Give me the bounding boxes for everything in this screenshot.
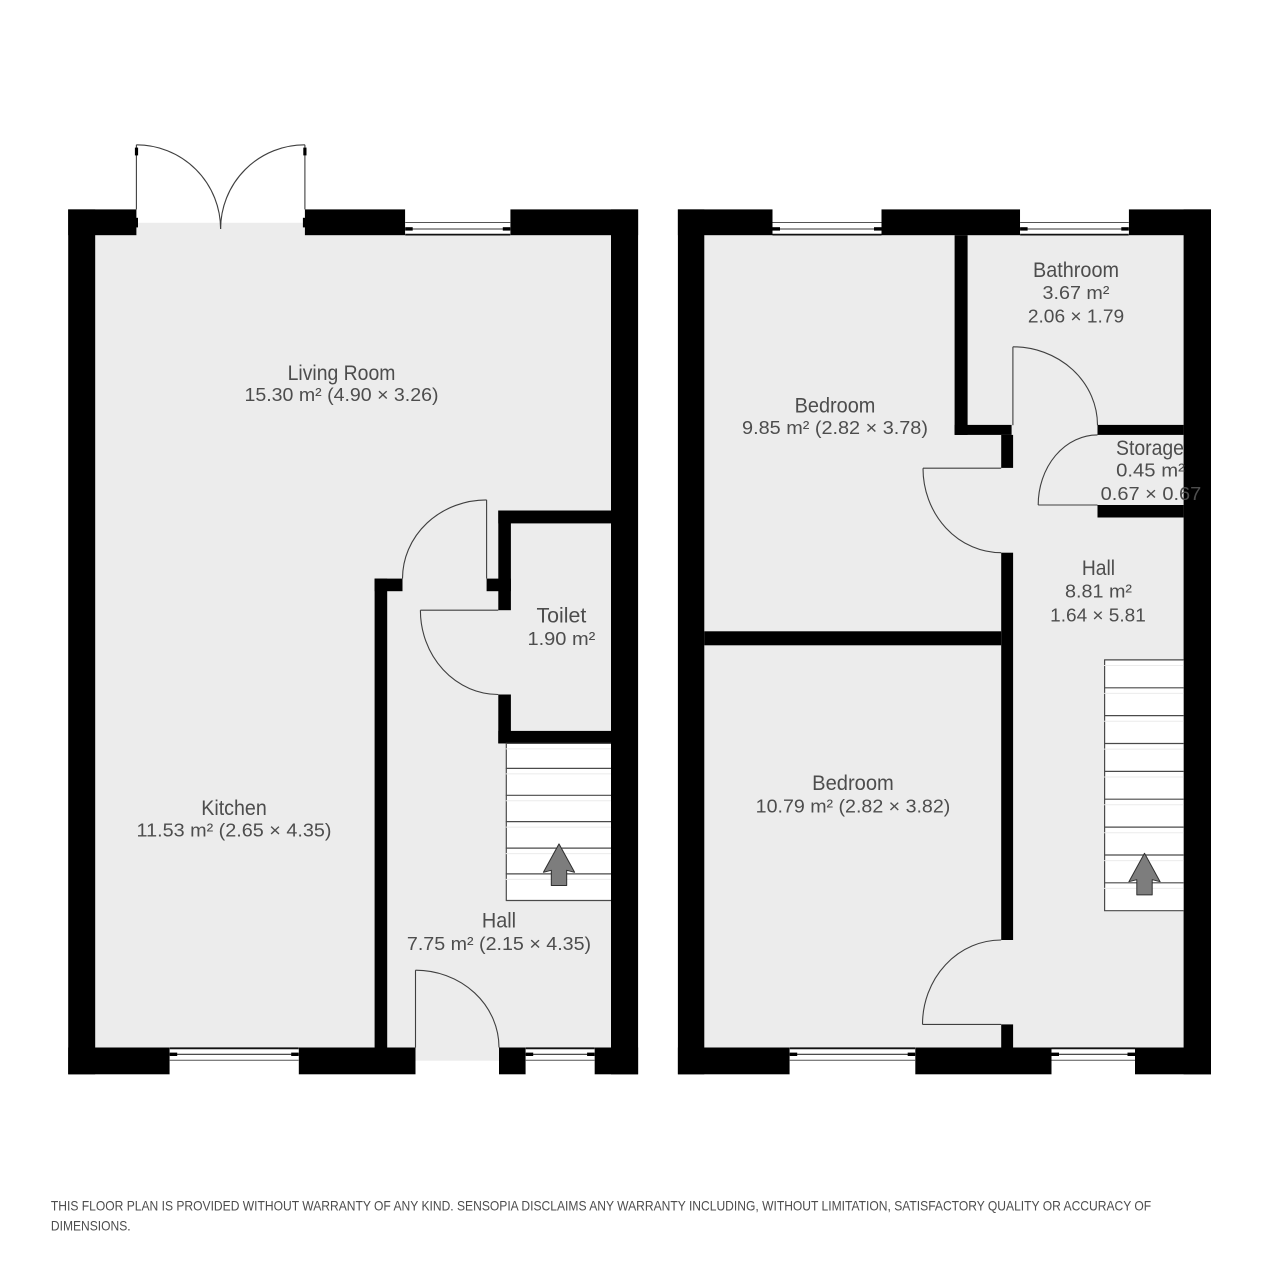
svg-text:Living Room: Living Room bbox=[288, 362, 396, 385]
svg-text:1.90 m²: 1.90 m² bbox=[528, 628, 596, 649]
svg-text:15.30 m² (4.90 × 3.26): 15.30 m² (4.90 × 3.26) bbox=[245, 384, 439, 405]
svg-text:0.67 × 0.67: 0.67 × 0.67 bbox=[1101, 483, 1202, 504]
svg-text:DIMENSIONS.: DIMENSIONS. bbox=[51, 1219, 131, 1234]
svg-text:Kitchen: Kitchen bbox=[201, 797, 267, 820]
svg-text:1.64 × 5.81: 1.64 × 5.81 bbox=[1050, 604, 1146, 625]
svg-text:Toilet: Toilet bbox=[537, 604, 587, 627]
svg-text:8.81 m²: 8.81 m² bbox=[1065, 581, 1132, 602]
svg-text:11.53 m² (2.65 × 4.35): 11.53 m² (2.65 × 4.35) bbox=[137, 820, 332, 841]
svg-text:Hall: Hall bbox=[482, 910, 516, 933]
svg-text:3.67 m²: 3.67 m² bbox=[1043, 282, 1110, 303]
svg-text:7.75 m² (2.15 × 4.35): 7.75 m² (2.15 × 4.35) bbox=[407, 933, 591, 954]
svg-text:2.06 × 1.79: 2.06 × 1.79 bbox=[1028, 305, 1124, 326]
svg-text:Storage: Storage bbox=[1116, 437, 1184, 460]
svg-text:Hall: Hall bbox=[1082, 557, 1115, 580]
svg-text:THIS FLOOR PLAN IS PROVIDED WI: THIS FLOOR PLAN IS PROVIDED WITHOUT WARR… bbox=[51, 1199, 1151, 1214]
svg-text:Bedroom: Bedroom bbox=[795, 395, 876, 418]
svg-text:Bedroom: Bedroom bbox=[812, 772, 894, 795]
svg-text:0.45 m²: 0.45 m² bbox=[1116, 460, 1185, 481]
svg-text:9.85 m² (2.82 × 3.78): 9.85 m² (2.82 × 3.78) bbox=[742, 417, 928, 438]
svg-text:Bathroom: Bathroom bbox=[1033, 259, 1119, 282]
svg-text:10.79 m² (2.82 × 3.82): 10.79 m² (2.82 × 3.82) bbox=[756, 795, 951, 816]
